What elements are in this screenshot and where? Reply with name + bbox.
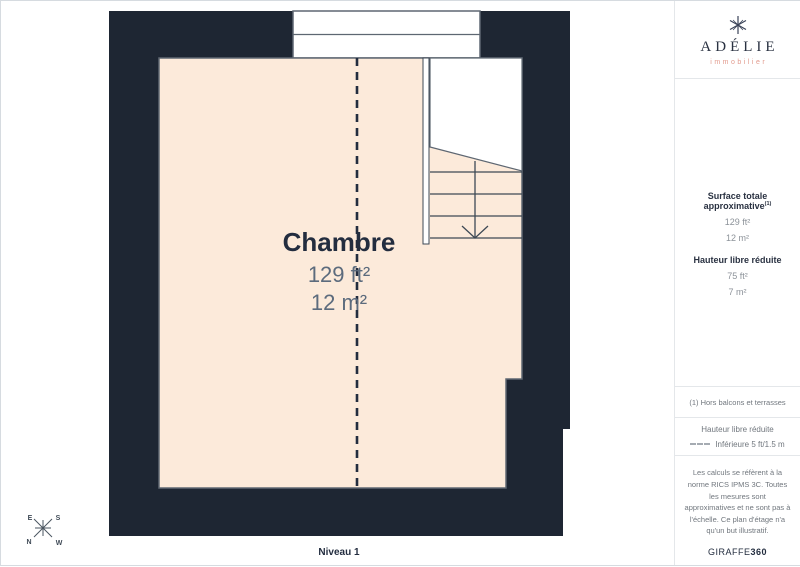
footnote-section: (1) Hors balcons et terrasses [675,387,800,418]
legend-section: Hauteur libre réduite Inférieure 5 ft/1.… [675,418,800,456]
compass-w-label: W [56,540,63,547]
giraffe-brand-suffix: 360 [750,547,767,557]
surface-total-title-text: Surface totale approximative [704,191,768,211]
surface-info-section: Surface totale approximative(1) 129 ft² … [675,79,800,387]
surface-total-superscript: (1) [765,201,772,207]
room-area-m-label: 12 m² [311,290,367,315]
compass-s-label: S [56,515,61,522]
surface-value-ft: 129 ft² [675,217,800,227]
footnote-text: (1) Hors balcons et terrasses [689,398,785,407]
stair-railing [423,58,429,244]
reduced-height-title: Hauteur libre réduite [675,255,800,265]
agency-name: ADÉLIE [696,39,778,56]
legend-row: Inférieure 5 ft/1.5 m [690,440,784,449]
compass-e-label: E [28,515,33,522]
room-area-ft-label: 129 ft² [308,262,370,287]
compass: E S N W [26,515,62,547]
floor-plan-page: { "page": { "level_label": "Niveau 1" },… [0,0,800,566]
surface-value-m: 12 m² [675,233,800,243]
info-sidebar: ADÉLIE immobilier Surface totale approxi… [674,1,800,565]
level-label: Niveau 1 [318,547,360,558]
reduced-height-value-ft: 75 ft² [675,271,800,281]
logo-section: ADÉLIE immobilier [675,1,800,79]
giraffe360-brand: GIRAFFE360 [684,547,791,557]
spacer [675,243,800,255]
compass-star-icon [34,519,52,537]
compass-n-label: N [26,539,31,546]
floor-plan-canvas: Chambre 129 ft² 12 m² E S N W Niveau 1 [1,1,661,567]
legend-item-label: Inférieure 5 ft/1.5 m [715,440,784,449]
snowflake-star-icon [727,14,749,36]
legend-title: Hauteur libre réduite [701,425,773,434]
giraffe-brand-name: GIRAFFE [708,547,751,557]
disclaimer-text: Les calculs se réfèrent à la norme RICS … [684,467,791,537]
surface-total-title: Surface totale approximative(1) [675,191,800,211]
disclaimer-section: Les calculs se réfèrent à la norme RICS … [675,456,800,565]
reduced-height-value-m: 7 m² [675,287,800,297]
room-name-label: Chambre [283,227,396,257]
agency-subtitle: immobilier [708,59,767,66]
dashed-line-icon [690,443,710,445]
